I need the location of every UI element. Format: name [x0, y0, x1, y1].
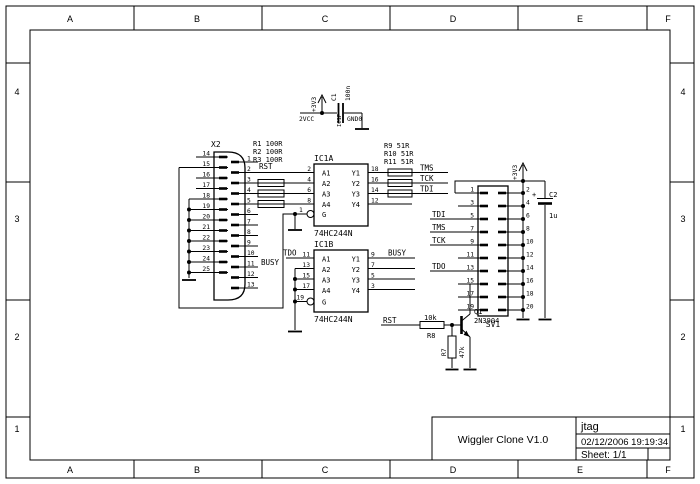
drawing-frame: A B C D E F A B C D E F 4 3 2 1 4 3 2 1	[6, 6, 694, 478]
pin-number: 12	[526, 252, 534, 259]
grid-col-label: C	[322, 14, 329, 24]
resistors-r1-r3[interactable]: R1 100R R2 100R R3 100R	[253, 140, 314, 208]
c1-ref: C1	[331, 93, 338, 101]
resistor-label: R11 51R	[384, 158, 414, 166]
grid-row-label: 1	[680, 424, 685, 434]
ic-pin-label: Y2	[352, 180, 360, 188]
resistor-label: R10 51R	[384, 150, 414, 158]
ic-pin-label: Y1	[352, 170, 360, 178]
net-label-tdo: TDO	[432, 262, 446, 271]
resistor-label: R9 51R	[384, 142, 410, 150]
pin-number: 2	[247, 166, 251, 173]
pin-number: 6	[307, 187, 311, 194]
resistor-body-r8	[420, 322, 444, 329]
ic1a-part: 74HC244N	[314, 229, 353, 238]
vcc-pin-label: 2VCC	[299, 116, 314, 123]
pin-number: 5	[247, 198, 251, 205]
pin-number: 11	[466, 252, 474, 259]
pin-number: 6	[526, 213, 530, 220]
pin-number: 16	[371, 177, 379, 184]
pin-number: 13	[466, 265, 474, 272]
pin-number: 11	[302, 252, 310, 259]
ic-pin-label: A2	[322, 266, 330, 274]
ic1-power-gate-label: IC1P	[337, 113, 343, 127]
pin-number: 3	[371, 283, 375, 290]
r8-value: 10k	[424, 314, 437, 322]
pin-number: 23	[202, 245, 210, 252]
pin-number: 14	[202, 151, 210, 158]
pin-number: 17	[202, 182, 210, 189]
net-label-tms: TMS	[420, 164, 434, 173]
pin-number: 7	[371, 262, 375, 269]
pin-number: 4	[247, 187, 251, 194]
polarity-plus: +	[532, 191, 536, 199]
ic-pin-label: A1	[322, 256, 330, 264]
pin-number: 9	[470, 239, 474, 246]
c2-ref: C2	[549, 191, 557, 199]
resistor-label: R2 100R	[253, 148, 283, 156]
grid-col-label: E	[577, 14, 583, 24]
pin-number: 16	[202, 172, 210, 179]
schematic-title: Wiggler Clone V1.0	[458, 434, 549, 446]
pin-number: 11	[247, 261, 255, 268]
pin-number: 18	[371, 166, 379, 173]
pin-number: 10	[247, 250, 255, 257]
capacitor-c1-power[interactable]: +3V3 C1 100n 2VCC IC1P GND0	[299, 86, 369, 129]
grid-row-label: 4	[14, 87, 19, 97]
pin-number: 24	[202, 256, 210, 263]
resistor-label: R1 100R	[253, 140, 283, 148]
pin-number: 3	[247, 177, 251, 184]
inverter-bubble	[307, 211, 314, 218]
r7-value: 47k	[459, 346, 466, 358]
pin-number: 16	[526, 278, 534, 285]
pin-number: 14	[371, 187, 379, 194]
ic-pin-label: A1	[322, 170, 330, 178]
grid-col-label: F	[665, 14, 671, 24]
power-label: +3V3	[512, 165, 519, 180]
net-label-tdi: TDI	[432, 210, 446, 219]
ic-pin-label: A4	[322, 287, 330, 295]
grid-col-label: F	[665, 465, 671, 475]
pin-number: 18	[526, 291, 534, 298]
pin-number: 5	[371, 273, 375, 280]
grid-col-label: A	[67, 465, 73, 475]
net-label-tck: TCK	[420, 174, 434, 183]
pin-number: 8	[247, 229, 251, 236]
resistor-body-r7	[448, 336, 456, 358]
capacitor-c2[interactable]: + C2 1u	[532, 181, 557, 320]
pin-number: 21	[202, 224, 210, 231]
ic-pin-label: A2	[322, 180, 330, 188]
pin-number: 18	[202, 193, 210, 200]
net-label-busy: BUSY	[388, 249, 407, 258]
pin-number: 15	[302, 273, 310, 280]
net-label-tck: TCK	[432, 236, 446, 245]
grid-row-label: 3	[680, 214, 685, 224]
pin-number: 13	[302, 262, 310, 269]
grid-row-label: 3	[14, 214, 19, 224]
schematic-canvas: A B C D E F A B C D E F 4 3 2 1 4 3 2 1 …	[0, 0, 700, 484]
header-pads	[480, 193, 506, 310]
pin-number: 3	[470, 200, 474, 207]
pin-number: 25	[202, 266, 210, 273]
grid-col-label: B	[194, 465, 200, 475]
ic-gate-label: G	[322, 299, 326, 307]
ic-pin-label: Y3	[352, 277, 360, 285]
grid-row-label: 2	[680, 332, 685, 342]
power-label: +3V3	[311, 97, 318, 112]
pin-number: 13	[247, 282, 255, 289]
pin-number: 5	[470, 213, 474, 220]
dsub-pads	[219, 157, 239, 288]
resistor-label: R3 100R	[253, 156, 283, 164]
grid-col-label: C	[322, 465, 329, 475]
pin-number: 19	[296, 295, 304, 302]
pin-number: 7	[247, 219, 251, 226]
grid-col-label: E	[577, 465, 583, 475]
grid-row-label: 1	[14, 424, 19, 434]
pin-number: 6	[247, 208, 251, 215]
jtag-connector-sv1[interactable]: SV1 1 3 5 7 9 11 13 15 17 19 2 4 6 8	[430, 163, 545, 329]
pin-number: 15	[202, 161, 210, 168]
pin-number: 4	[526, 200, 530, 207]
ic-gate-label: G	[322, 211, 326, 219]
pin-number: 1	[247, 156, 251, 163]
ic-pin-label: Y4	[352, 201, 360, 209]
pin-number: 1	[299, 207, 303, 214]
pin-number: 20	[202, 214, 210, 221]
pin-number: 8	[526, 226, 530, 233]
r7-ref: R7	[441, 348, 448, 356]
ic-pin-label: A3	[322, 191, 330, 199]
net-label-rst: RST	[383, 316, 397, 325]
pin-number: 12	[371, 198, 379, 205]
grid-row-label: 2	[14, 332, 19, 342]
net-label-tdi: TDI	[420, 185, 434, 194]
ic-pin-label: A3	[322, 277, 330, 285]
project-name: jtag	[580, 421, 599, 433]
gnd-pin-label: GND0	[347, 116, 362, 123]
grid-row-label: 4	[680, 87, 685, 97]
c1-value: 100n	[345, 86, 352, 101]
ic-pin-label: Y4	[352, 287, 360, 295]
net-label-tdo: TDO	[283, 249, 297, 258]
grid-col-label: A	[67, 14, 73, 24]
pin-number: 2	[307, 166, 311, 173]
grid-col-label: D	[450, 14, 457, 24]
pin-number: 2	[526, 187, 530, 194]
ic-pin-label: Y2	[352, 266, 360, 274]
pin-number: 9	[247, 240, 251, 247]
pin-number: 22	[202, 235, 210, 242]
net-label-tms: TMS	[432, 223, 446, 232]
ic1b-part: 74HC244N	[314, 315, 353, 324]
q1-ref: Q1	[474, 308, 482, 316]
pin-number: 20	[526, 304, 534, 311]
ic-pin-label: A4	[322, 201, 330, 209]
pin-number: 9	[371, 252, 375, 259]
pin-number: 14	[526, 265, 534, 272]
pin-number: 10	[526, 239, 534, 246]
ic-pin-label: Y1	[352, 256, 360, 264]
grid-col-label: D	[450, 465, 457, 475]
buffer-ic1a[interactable]: IC1A 74HC244N A1 A2 A3 A4 Y1 Y2 Y3 Y4 G …	[288, 154, 412, 238]
ic1a-ref: IC1A	[314, 154, 333, 163]
sheet-number: Sheet: 1/1	[581, 450, 627, 461]
ic-pin-label: Y3	[352, 191, 360, 199]
pin-number: 12	[247, 271, 255, 278]
r8-ref: R8	[427, 332, 435, 340]
x2-ref: X2	[211, 140, 221, 149]
pin-number: 7	[470, 226, 474, 233]
inverter-bubble	[307, 298, 314, 305]
parallel-port-connector-x2[interactable]: X2 14 15 16	[179, 140, 314, 308]
pin-number: 8	[307, 198, 311, 205]
title-block: Wiggler Clone V1.0 jtag 02/12/2006 19:19…	[432, 417, 670, 461]
pin-number: 4	[307, 177, 311, 184]
c2-value: 1u	[549, 212, 557, 220]
q1-part: 2N3904	[474, 317, 499, 325]
pin-number: 1	[470, 187, 474, 194]
ic1b-ref: IC1B	[314, 240, 333, 249]
pin-number: 15	[466, 278, 474, 285]
net-label-busy: BUSY	[261, 258, 280, 267]
resistors-r9-r11[interactable]: R9 51R R10 51R R11 51R TMS TCK TDI	[384, 142, 448, 197]
grid-col-label: B	[194, 14, 200, 24]
pin-number: 19	[202, 203, 210, 210]
pin-number: 17	[302, 283, 310, 290]
timestamp: 02/12/2006 19:19:34	[581, 437, 668, 448]
